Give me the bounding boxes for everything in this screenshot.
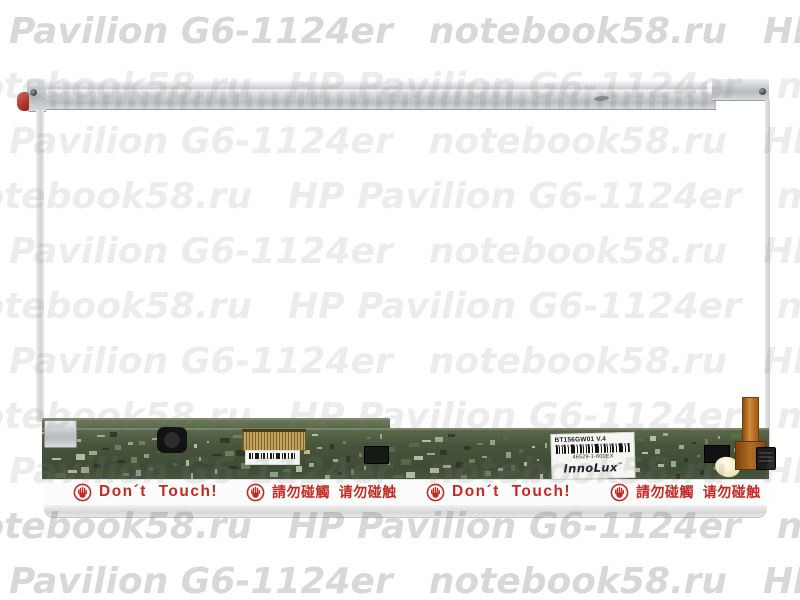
innolux-logo: InnoLux™	[555, 459, 631, 476]
warning-dont-touch-2: Don´t Touch!	[426, 481, 571, 503]
warning-dont-touch-zh-2: 請勿碰觸 请勿碰触	[610, 481, 761, 503]
hand-icon	[246, 483, 265, 502]
lvds-connector	[242, 429, 306, 451]
panel-bottom-edge	[44, 505, 767, 518]
bracket-left-end	[27, 79, 46, 112]
warning-text: Don´t Touch!	[99, 483, 218, 501]
warning-text: 請勿碰觸 请勿碰触	[272, 482, 397, 502]
grounding-tab	[44, 420, 77, 448]
driver-pcb	[42, 428, 769, 481]
chip-component	[364, 446, 389, 464]
screw-hole-left	[30, 89, 37, 96]
hand-icon	[610, 483, 629, 502]
barcode-sticker	[245, 450, 300, 465]
barcode	[249, 453, 296, 459]
product-photo-lcd-panel: BT156GW01 V.4 46529-1-600EX InnoLux™ Don…	[0, 0, 800, 600]
screw-hole-right	[759, 88, 766, 95]
panel-left-rail	[36, 110, 44, 422]
warning-dont-touch-1: Don´t Touch!	[73, 481, 218, 503]
warning-text: 請勿碰觸 请勿碰触	[636, 482, 761, 502]
hand-icon	[426, 483, 445, 502]
hand-icon	[73, 483, 92, 502]
rubber-bumper	[17, 92, 29, 111]
side-connector	[756, 447, 776, 470]
panel-right-rail	[765, 100, 770, 450]
warning-text: Don´t Touch!	[452, 483, 571, 501]
warning-dont-touch-zh-1: 請勿碰觸 请勿碰触	[246, 481, 397, 503]
bracket-main-bar	[44, 90, 716, 110]
panel-info-label: BT156GW01 V.4 46529-1-600EX InnoLux™	[550, 432, 635, 480]
ic-component	[157, 427, 187, 453]
